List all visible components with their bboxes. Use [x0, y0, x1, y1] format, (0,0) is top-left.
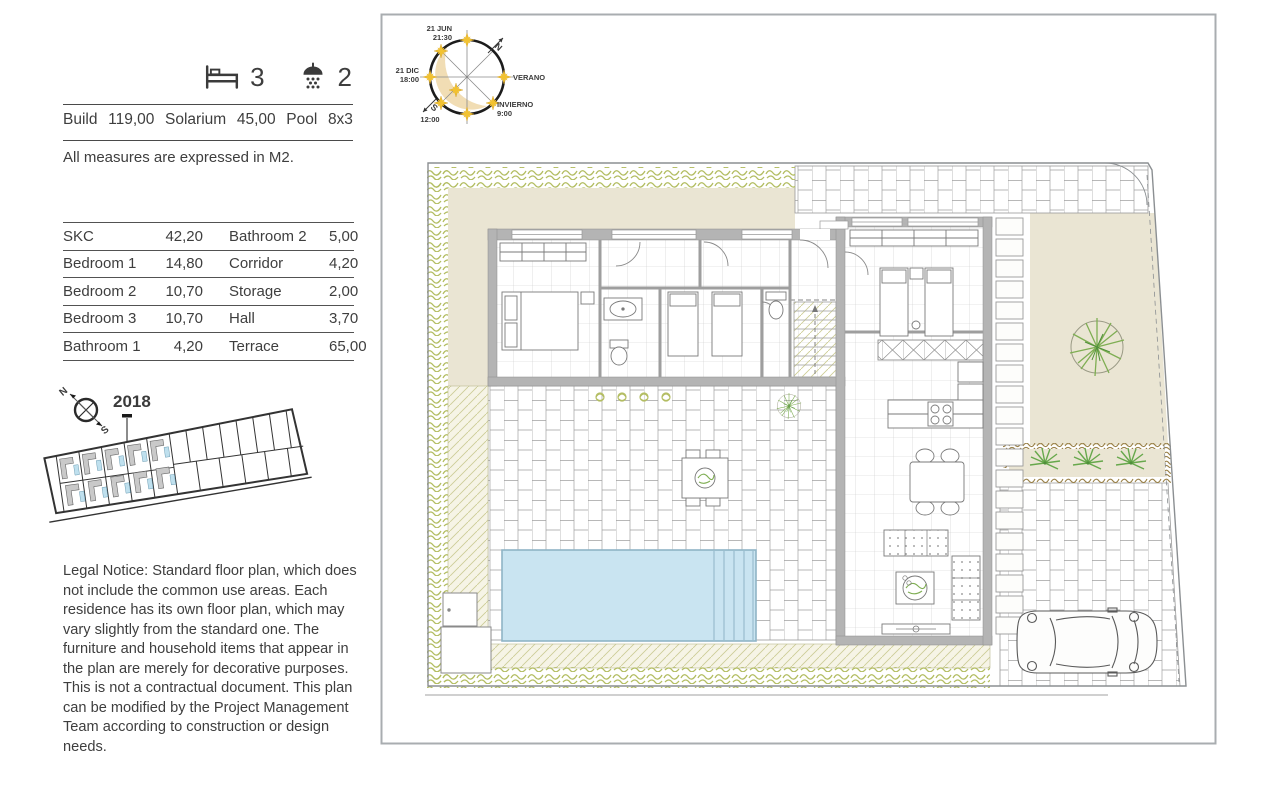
solarium-label: Solarium — [165, 111, 226, 129]
specs-row: Build 119,00 Solarium 45,00 Pool 8x3 — [63, 111, 353, 129]
room-label: Bathroom 1 — [63, 338, 159, 355]
floor-plan-page: 21 JUN 21:30 21 DIC 18:00 VERANO INVIERN… — [0, 0, 1280, 800]
ac-unit — [820, 221, 848, 229]
outdoor-table — [682, 458, 728, 498]
label-winter-date: 21 DIC — [396, 66, 420, 75]
room-label: Terrace — [229, 338, 329, 355]
solarium-value: 45,00 — [237, 111, 276, 129]
label-summer-time: 21:30 — [433, 33, 452, 42]
unit-year-label: 2018 — [113, 392, 151, 411]
pool-label: Pool — [286, 111, 317, 129]
room-area: 5,00 — [329, 228, 358, 245]
build-value: 119,00 — [108, 111, 154, 129]
label-winter-time: 18:00 — [400, 75, 419, 84]
car — [1017, 608, 1157, 676]
compass: N S — [57, 385, 111, 436]
room-label: Bedroom 1 — [63, 255, 159, 272]
table-row: Bathroom 1 4,20 Terrace 65,00 — [63, 332, 354, 361]
dining-table — [910, 462, 964, 502]
shower-icon — [298, 61, 328, 93]
label-noon: 12:00 — [420, 115, 439, 124]
legal-notice: Legal Notice: Standard floor plan, which… — [63, 562, 368, 757]
build-label: Build — [63, 111, 97, 129]
shade-crescent — [435, 47, 487, 110]
bedroom-count: 3 — [250, 62, 265, 93]
room-area: 10,70 — [159, 310, 203, 327]
room-label: Bedroom 3 — [63, 310, 159, 327]
planter — [1003, 443, 1171, 483]
coffee-table — [896, 572, 934, 604]
sun-icon — [423, 70, 437, 84]
label-south: S — [429, 102, 440, 114]
solarium-top — [448, 188, 795, 229]
label-winter-sunrise: 9:00 — [497, 109, 512, 118]
room-label: Corridor — [229, 255, 329, 272]
sun-diagram: 21 JUN 21:30 21 DIC 18:00 VERANO INVIERN… — [396, 24, 546, 124]
room-area: 3,70 — [329, 310, 358, 327]
table-row: Bedroom 3 10,70 Hall 3,70 — [63, 305, 354, 333]
pool — [502, 550, 756, 641]
site-mini-map: N S 2018 — [38, 380, 368, 525]
compass-south: S — [99, 424, 111, 437]
sun-icon — [460, 33, 474, 47]
table-row: SKC 42,20 Bathroom 2 5,00 — [63, 222, 354, 250]
table-row: Bedroom 1 14,80 Corridor 4,20 — [63, 250, 354, 278]
bed-icon — [204, 61, 240, 93]
garden-right — [1030, 213, 1168, 445]
label-invierno: INVIERNO — [497, 100, 533, 109]
bathroom-count: 2 — [338, 62, 353, 93]
sun-icon — [497, 70, 511, 84]
outdoor-dining-set — [682, 450, 728, 506]
room-label: Bedroom 2 — [63, 283, 159, 300]
room-label: Bathroom 2 — [229, 228, 329, 245]
closet — [878, 340, 983, 360]
room-area: 10,70 — [159, 283, 203, 300]
label-verano: VERANO — [513, 73, 545, 82]
measures-note: All measures are expressed in M2. — [63, 149, 363, 166]
entrance-gap — [800, 229, 830, 240]
room-area: 2,00 — [329, 283, 358, 300]
table-row: Bedroom 2 10,70 Storage 2,00 — [63, 277, 354, 305]
divider — [63, 104, 353, 105]
solarium-left — [448, 188, 488, 386]
room-area: 42,20 — [159, 228, 203, 245]
room-label: Storage — [229, 283, 329, 300]
room-area: 65,00 — [329, 338, 367, 355]
room-area: 4,20 — [329, 255, 358, 272]
compass-north: N — [57, 385, 70, 398]
areas-table: SKC 42,20 Bathroom 2 5,00 Bedroom 1 14,8… — [63, 222, 354, 361]
plots — [38, 408, 312, 522]
pool-value: 8x3 — [328, 111, 353, 129]
room-area: 14,80 — [159, 255, 203, 272]
room-area: 4,20 — [159, 338, 203, 355]
room-label: Hall — [229, 310, 329, 327]
label-summer-date: 21 JUN — [427, 24, 452, 33]
capacity-icons-row: 3 2 — [63, 54, 353, 100]
divider — [63, 140, 353, 141]
room-label: SKC — [63, 228, 159, 245]
stairs — [794, 302, 836, 377]
